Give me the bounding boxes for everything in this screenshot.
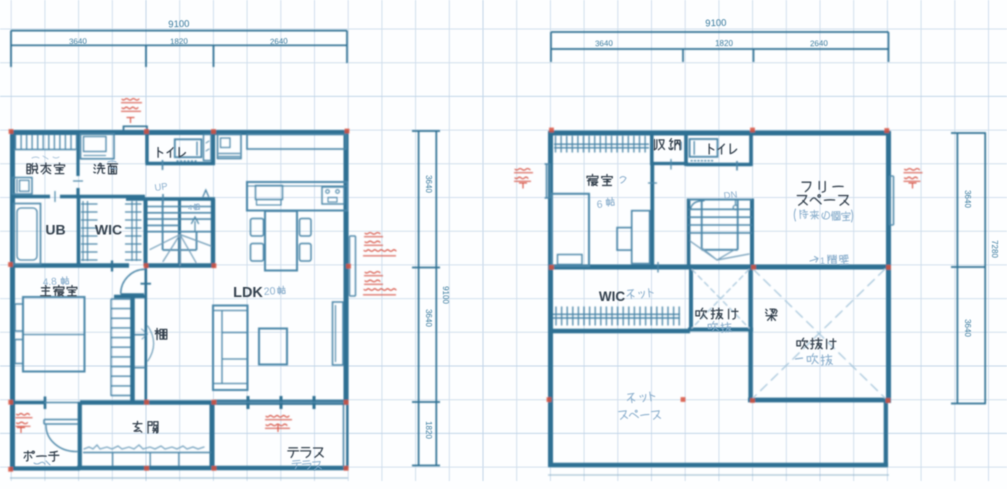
svg-text:UP: UP [154, 181, 169, 194]
svg-text:UB: UB [45, 222, 65, 238]
svg-text:20: 20 [263, 285, 276, 298]
svg-text:7280: 7280 [990, 240, 999, 258]
svg-text:3640: 3640 [963, 319, 972, 337]
svg-text:3640: 3640 [69, 37, 88, 47]
svg-text:4: 4 [188, 203, 192, 212]
svg-text:9100: 9100 [168, 19, 190, 31]
svg-text:3640: 3640 [963, 190, 972, 208]
svg-text:1: 1 [820, 256, 825, 266]
svg-text:4.8: 4.8 [42, 277, 57, 289]
svg-text:6: 6 [596, 199, 603, 211]
svg-text:3640: 3640 [424, 309, 433, 327]
svg-text:3640: 3640 [595, 39, 614, 49]
svg-text:2640: 2640 [810, 39, 829, 49]
svg-text:WIC: WIC [95, 222, 122, 238]
svg-text:3640: 3640 [424, 175, 433, 193]
svg-text:2640: 2640 [270, 37, 289, 47]
svg-text:DN: DN [723, 190, 738, 202]
svg-text:1820: 1820 [170, 37, 189, 47]
svg-text:WIC: WIC [599, 289, 625, 304]
svg-text:1820: 1820 [715, 39, 733, 48]
svg-text:1820: 1820 [424, 421, 433, 439]
svg-text:9100: 9100 [705, 18, 727, 30]
svg-text:LDK: LDK [233, 285, 263, 301]
svg-text:9100: 9100 [441, 286, 450, 304]
